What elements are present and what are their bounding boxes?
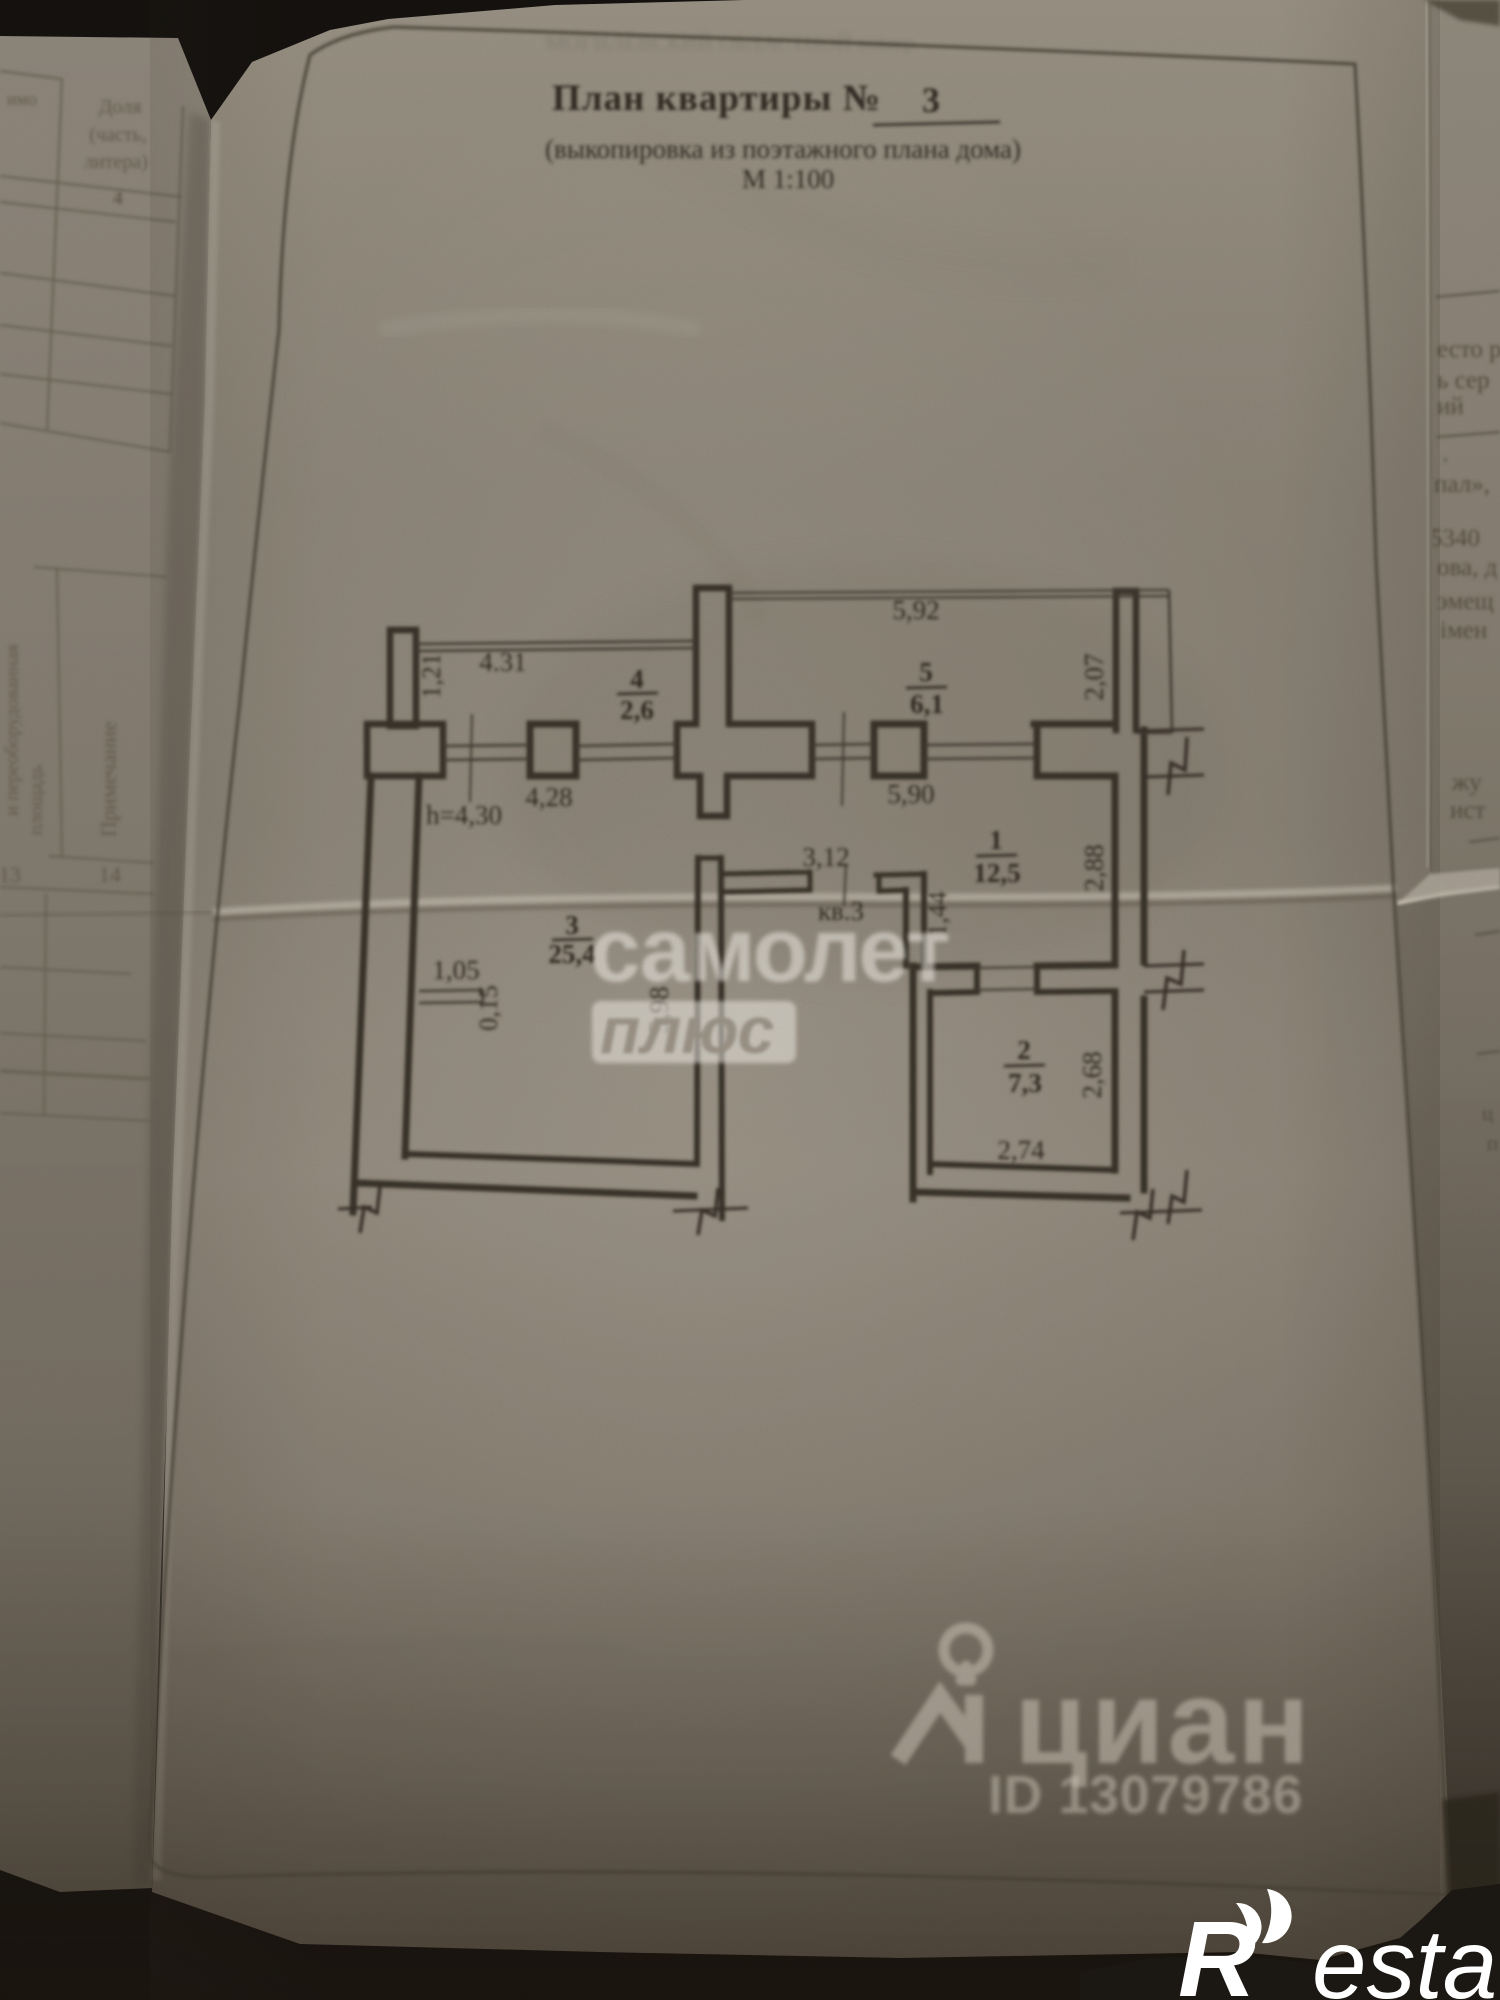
svg-text:estate: estate <box>1312 1909 1500 2000</box>
